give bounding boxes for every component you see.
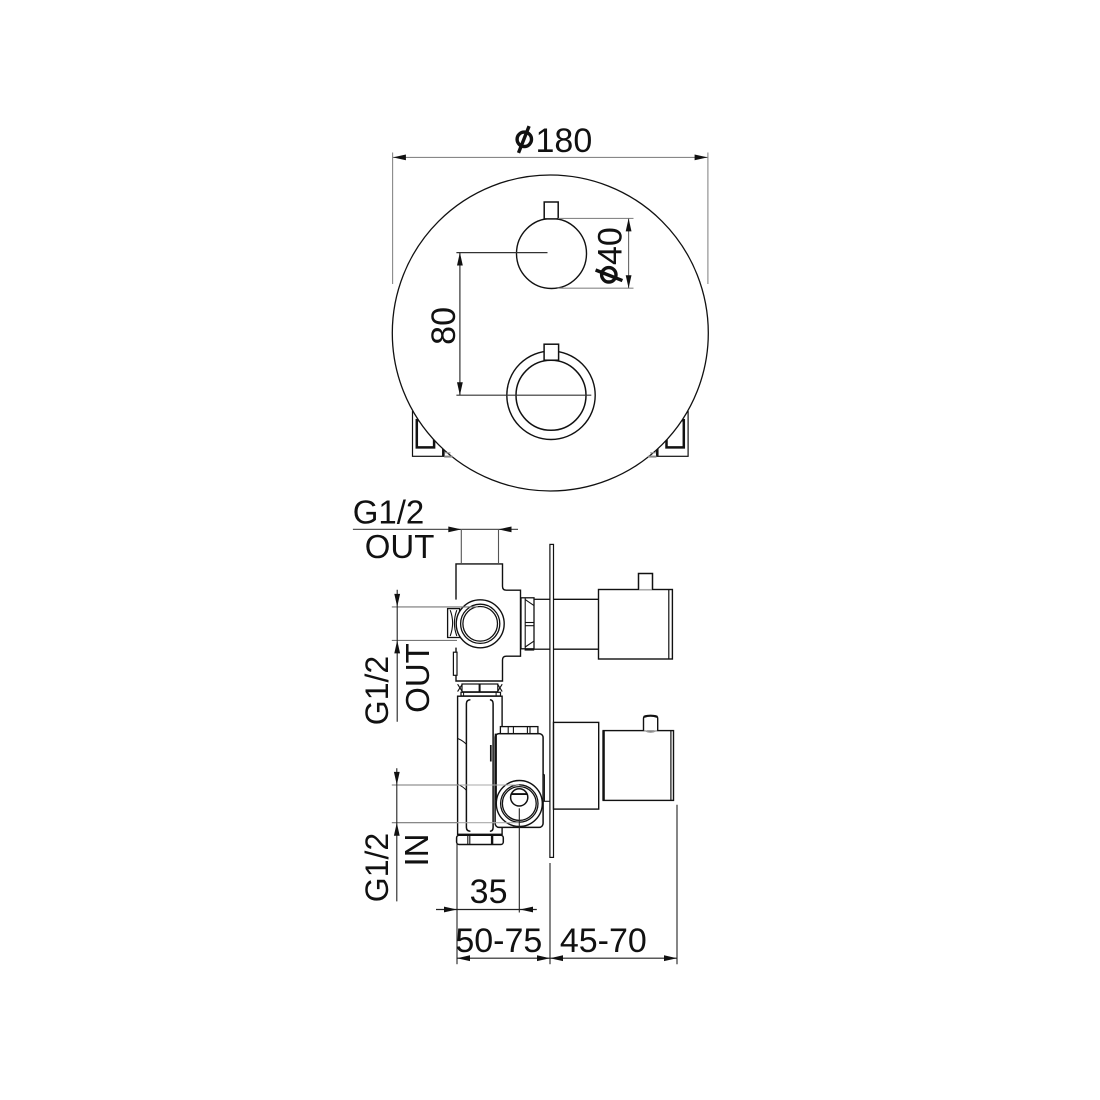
svg-text:45-70: 45-70: [560, 922, 647, 960]
svg-text:40: 40: [592, 227, 630, 265]
svg-text:G1/2: G1/2: [359, 656, 395, 725]
svg-text:OUT: OUT: [399, 643, 436, 713]
svg-text:180: 180: [536, 122, 593, 160]
svg-text:80: 80: [425, 307, 463, 345]
svg-text:50-75: 50-75: [455, 922, 542, 960]
svg-text:OUT: OUT: [365, 528, 435, 565]
svg-text:G1/2: G1/2: [353, 494, 425, 531]
svg-text:G1/2: G1/2: [359, 833, 395, 902]
svg-text:IN: IN: [398, 834, 435, 867]
svg-text:35: 35: [470, 873, 508, 911]
